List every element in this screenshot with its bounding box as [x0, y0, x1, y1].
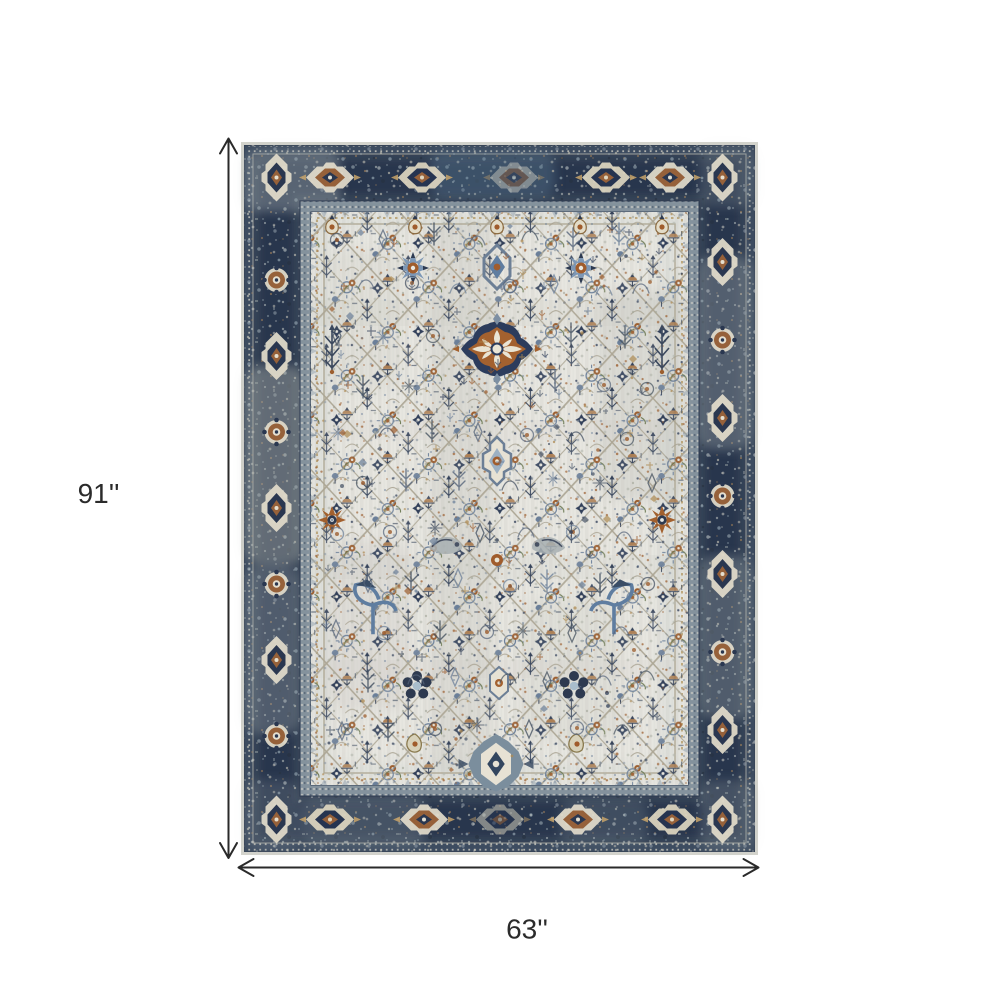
svg-text:63'': 63''	[506, 914, 548, 945]
svg-text:91'': 91''	[78, 478, 120, 509]
